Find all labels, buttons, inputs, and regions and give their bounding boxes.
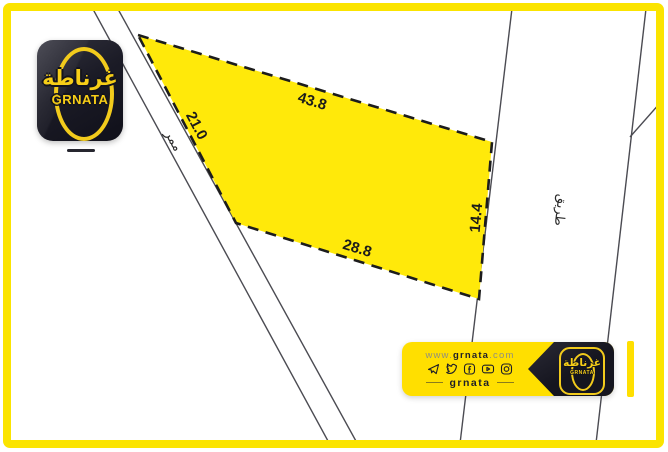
road-name-label: طريق	[551, 193, 570, 227]
telegram-icon[interactable]	[427, 363, 440, 375]
footer-logo-arabic-text: غرناطة	[561, 358, 603, 369]
social-handle[interactable]: grnata	[449, 377, 490, 389]
decorative-yellow-bar	[627, 341, 634, 397]
grnata-logo-card: غرناطة GRNATA	[37, 40, 123, 141]
footer-contact-block: www.grnata.com	[402, 342, 538, 396]
website-link[interactable]: www.grnata.com	[425, 350, 514, 361]
facebook-icon[interactable]	[463, 363, 476, 375]
footer-banner: www.grnata.com	[402, 342, 614, 396]
website-name: grnata	[453, 350, 489, 361]
social-handle-row: grnata	[426, 377, 513, 389]
land-plot-polygon	[138, 35, 492, 299]
dimension-label-right: 14.4	[467, 202, 487, 233]
handle-dash-left	[426, 382, 443, 384]
logo-underline-dash	[67, 149, 95, 152]
website-suffix: .com	[489, 350, 514, 361]
footer-grnata-logo: غرناطة GRNATA	[559, 347, 605, 395]
footer-logo-section: غرناطة GRNATA	[528, 342, 614, 396]
social-icons-row	[427, 363, 513, 375]
logo-latin-text: GRNATA	[37, 92, 123, 107]
logo-arabic-text: غرناطة	[37, 67, 123, 89]
handle-dash-right	[497, 382, 514, 384]
footer-logo-latin-text: GRNATA	[561, 370, 603, 376]
passage-road-label: ممر	[161, 127, 185, 154]
youtube-icon[interactable]	[481, 363, 495, 375]
land-plot-flyer: 43.8 14.4 28.8 21.0 ممر طريق غرناطة GRNA…	[0, 0, 668, 452]
website-prefix: www.	[425, 350, 453, 361]
instagram-icon[interactable]	[500, 363, 513, 375]
twitter-icon[interactable]	[445, 363, 458, 375]
